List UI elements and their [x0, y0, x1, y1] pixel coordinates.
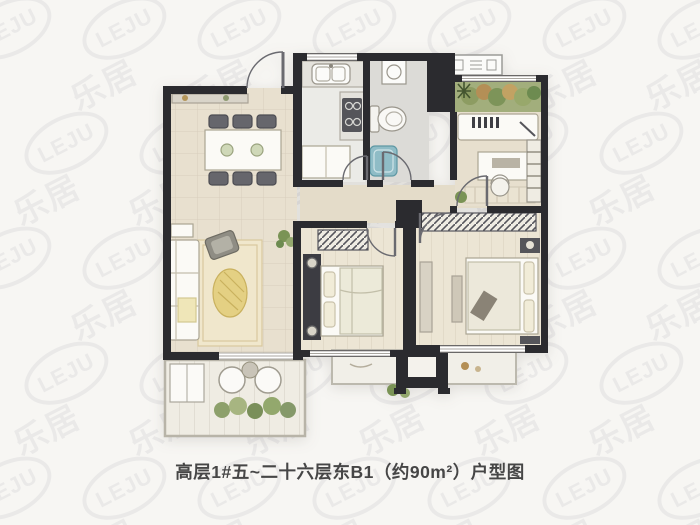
floor-plan — [0, 0, 700, 525]
bed-bench — [452, 276, 462, 322]
pillow — [524, 262, 534, 294]
balcony-chair — [255, 367, 281, 393]
floor-plan-caption: 高层1#五~二十六层东B1（约90m²）户型图 — [0, 459, 700, 484]
wardrobe — [318, 230, 368, 250]
pillow — [324, 302, 335, 327]
dining-table — [205, 130, 281, 170]
toilet — [370, 106, 406, 132]
blanket — [340, 268, 382, 334]
floor-plan-page: LEJU乐居LEJU乐居LEJU乐居LEJU乐居LEJU乐居LEJU乐居LEJU… — [0, 0, 700, 525]
monitor — [492, 158, 520, 168]
sliding-door — [219, 353, 293, 359]
bookshelf — [527, 140, 541, 202]
window — [307, 54, 357, 60]
blanket — [468, 262, 520, 330]
window — [440, 346, 525, 352]
rear-balcony — [332, 350, 516, 398]
washing-machine — [382, 60, 406, 84]
bedside-lamp — [307, 326, 317, 336]
ac-unit — [448, 55, 502, 75]
nightstand — [520, 336, 540, 344]
side-table — [171, 224, 193, 237]
balcony-table — [242, 362, 258, 378]
bedside-lamp — [307, 258, 317, 268]
pillow — [324, 272, 335, 297]
pillow — [524, 300, 534, 332]
rug-oval — [213, 269, 247, 317]
balcony-decor — [461, 362, 469, 370]
desk-chair — [491, 178, 509, 196]
dresser — [420, 262, 432, 332]
window — [310, 351, 390, 356]
sofa — [169, 240, 199, 340]
sofa-throw — [178, 298, 196, 322]
window — [462, 76, 536, 81]
entry-door — [247, 52, 283, 88]
balcony-chair — [219, 367, 245, 393]
left-balcony — [165, 360, 305, 436]
